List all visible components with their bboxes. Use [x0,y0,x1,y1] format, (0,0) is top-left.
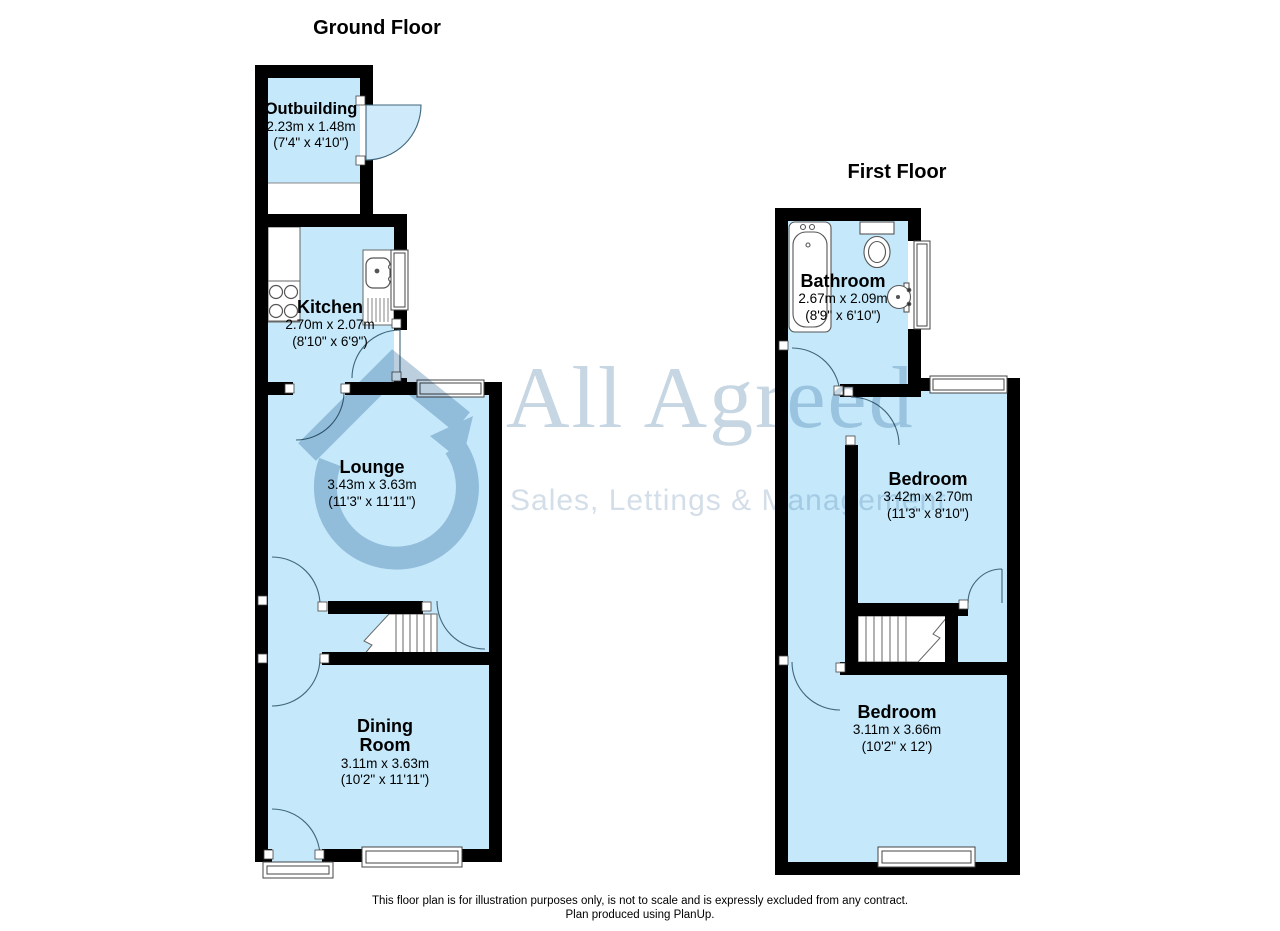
disclaimer-line1: This floor plan is for illustration purp… [0,894,1280,908]
disclaimer-line2: Plan produced using PlanUp. [0,908,1280,922]
room-dim-metric: 2.70m x 2.07m [285,317,374,333]
room-label-dining-room: Dining Room 3.11m x 3.63m (10'2" x 11'11… [341,717,430,788]
room-dim-imperial: (10'2" x 11'11") [341,772,430,788]
room-dim-imperial: (11'3" x 8'10") [883,506,972,522]
room-dim-metric: 3.11m x 3.66m [853,722,941,738]
room-name: Bathroom [798,272,887,291]
room-name: Lounge [327,458,416,477]
room-label-bedroom-2: Bedroom 3.11m x 3.66m (10'2" x 12') [853,703,941,755]
room-dim-imperial: (8'10" x 6'9") [285,334,374,350]
labels-layer: Ground Floor First Floor Outbuilding 2.2… [0,0,1280,931]
room-dim-imperial: (11'3" x 11'11") [327,494,416,510]
room-dim-metric: 3.43m x 3.63m [327,477,416,493]
room-label-bathroom: Bathroom 2.67m x 2.09m (8'9" x 6'10") [798,272,887,324]
room-label-bedroom-1: Bedroom 3.42m x 2.70m (11'3" x 8'10") [883,470,972,522]
room-dim-metric: 2.23m x 1.48m [265,119,358,135]
room-label-kitchen: Kitchen 2.70m x 2.07m (8'10" x 6'9") [285,298,374,350]
room-dim-metric: 3.42m x 2.70m [883,489,972,505]
room-label-lounge: Lounge 3.43m x 3.63m (11'3" x 11'11") [327,458,416,510]
first-floor-title: First Floor [848,161,947,184]
room-dim-imperial: (7'4" x 4'10") [265,135,358,151]
room-name: Dining Room [342,717,428,756]
room-dim-metric: 3.11m x 3.63m [341,756,430,772]
disclaimer: This floor plan is for illustration purp… [0,894,1280,923]
room-dim-metric: 2.67m x 2.09m [798,291,887,307]
room-name: Bedroom [853,703,941,722]
room-label-outbuilding: Outbuilding 2.23m x 1.48m (7'4" x 4'10") [265,101,358,151]
room-dim-imperial: (10'2" x 12') [853,739,941,755]
room-name: Outbuilding [265,101,358,119]
room-name: Bedroom [883,470,972,489]
ground-floor-title: Ground Floor [313,17,441,40]
room-dim-imperial: (8'9" x 6'10") [798,308,887,324]
room-name: Kitchen [285,298,374,317]
